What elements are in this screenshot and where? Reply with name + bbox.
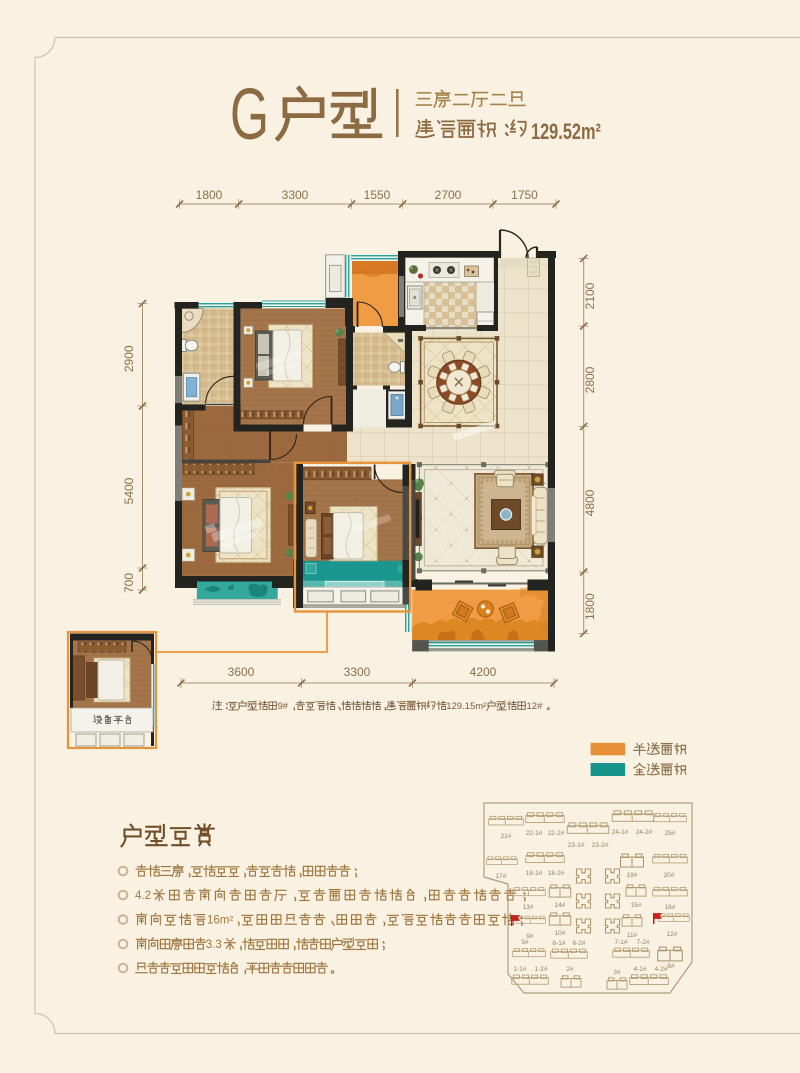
svg-text:21#: 21# bbox=[501, 833, 512, 840]
svg-text:18-2#: 18-2# bbox=[548, 870, 565, 877]
svg-text:15#: 15# bbox=[631, 902, 642, 909]
svg-text:4-1#: 4-1# bbox=[633, 966, 646, 973]
svg-text:4200: 4200 bbox=[470, 665, 497, 679]
svg-text:12#: 12# bbox=[667, 931, 678, 938]
svg-text:1-1#: 1-1# bbox=[513, 966, 526, 973]
svg-text:4.2: 4.2 bbox=[135, 890, 151, 902]
svg-text:23-2#: 23-2# bbox=[592, 842, 609, 849]
svg-text:20#: 20# bbox=[664, 872, 675, 879]
svg-text:129.15m²: 129.15m² bbox=[446, 701, 486, 712]
svg-text:3300: 3300 bbox=[282, 188, 309, 202]
svg-text:4-2#: 4-2# bbox=[654, 966, 667, 973]
svg-text:7-1#: 7-1# bbox=[614, 939, 627, 946]
svg-text:2900: 2900 bbox=[122, 345, 136, 372]
svg-text:2#: 2# bbox=[566, 966, 574, 973]
svg-text:6-1#: 6-1# bbox=[552, 940, 565, 947]
svg-text:1-2#: 1-2# bbox=[534, 966, 547, 973]
svg-text:10#: 10# bbox=[555, 930, 566, 937]
svg-text:6-2#: 6-2# bbox=[572, 940, 585, 947]
svg-text:3300: 3300 bbox=[344, 665, 371, 679]
svg-text:13#: 13# bbox=[523, 904, 534, 911]
svg-text:1800: 1800 bbox=[196, 188, 223, 202]
svg-text:3#: 3# bbox=[613, 969, 621, 976]
svg-text:3.3: 3.3 bbox=[206, 939, 222, 951]
svg-text:2800: 2800 bbox=[583, 366, 597, 393]
svg-text:22-2#: 22-2# bbox=[548, 830, 565, 837]
svg-text:1550: 1550 bbox=[364, 188, 391, 202]
svg-text:2700: 2700 bbox=[435, 188, 462, 202]
svg-text:24-1#: 24-1# bbox=[612, 829, 629, 836]
svg-text:700: 700 bbox=[122, 573, 136, 593]
svg-text:4800: 4800 bbox=[583, 489, 597, 516]
svg-text:9#: 9# bbox=[278, 701, 289, 712]
svg-text:12#: 12# bbox=[527, 701, 544, 712]
svg-text:16m²: 16m² bbox=[207, 915, 233, 927]
svg-text:5400: 5400 bbox=[122, 477, 136, 504]
svg-text:129.52m²: 129.52m² bbox=[531, 119, 601, 144]
svg-text:G: G bbox=[230, 75, 269, 155]
svg-text:8#: 8# bbox=[667, 963, 675, 970]
svg-text:7-2#: 7-2# bbox=[636, 939, 649, 946]
svg-text:16#: 16# bbox=[665, 904, 676, 911]
svg-text:2100: 2100 bbox=[583, 282, 597, 309]
svg-text:17#: 17# bbox=[496, 873, 507, 880]
svg-text:18-1#: 18-1# bbox=[526, 870, 543, 877]
svg-text:3600: 3600 bbox=[228, 665, 255, 679]
svg-text:1750: 1750 bbox=[511, 188, 538, 202]
svg-text:25#: 25# bbox=[665, 830, 676, 837]
svg-text:1800: 1800 bbox=[583, 593, 597, 620]
svg-text:22-1#: 22-1# bbox=[526, 830, 543, 837]
svg-text:14#: 14# bbox=[555, 902, 566, 909]
svg-text:11#: 11# bbox=[627, 932, 638, 939]
svg-text:19#: 19# bbox=[627, 872, 638, 879]
svg-text:24-2#: 24-2# bbox=[636, 829, 653, 836]
svg-text:5#: 5# bbox=[521, 939, 529, 946]
svg-text:23-1#: 23-1# bbox=[568, 842, 585, 849]
